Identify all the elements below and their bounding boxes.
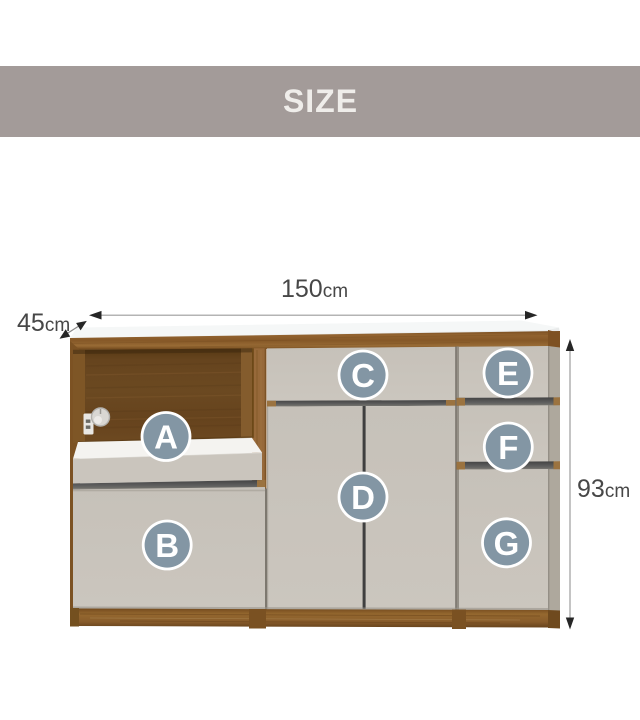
svg-text:B: B (155, 527, 179, 564)
svg-text:93cm: 93cm (577, 475, 630, 503)
svg-text:E: E (497, 355, 519, 392)
svg-text:D: D (351, 479, 375, 516)
svg-text:A: A (154, 419, 178, 456)
svg-text:C: C (351, 357, 375, 394)
svg-text:G: G (494, 525, 520, 562)
svg-text:45cm: 45cm (17, 309, 70, 337)
svg-text:150cm: 150cm (281, 275, 348, 303)
svg-text:F: F (498, 429, 518, 466)
